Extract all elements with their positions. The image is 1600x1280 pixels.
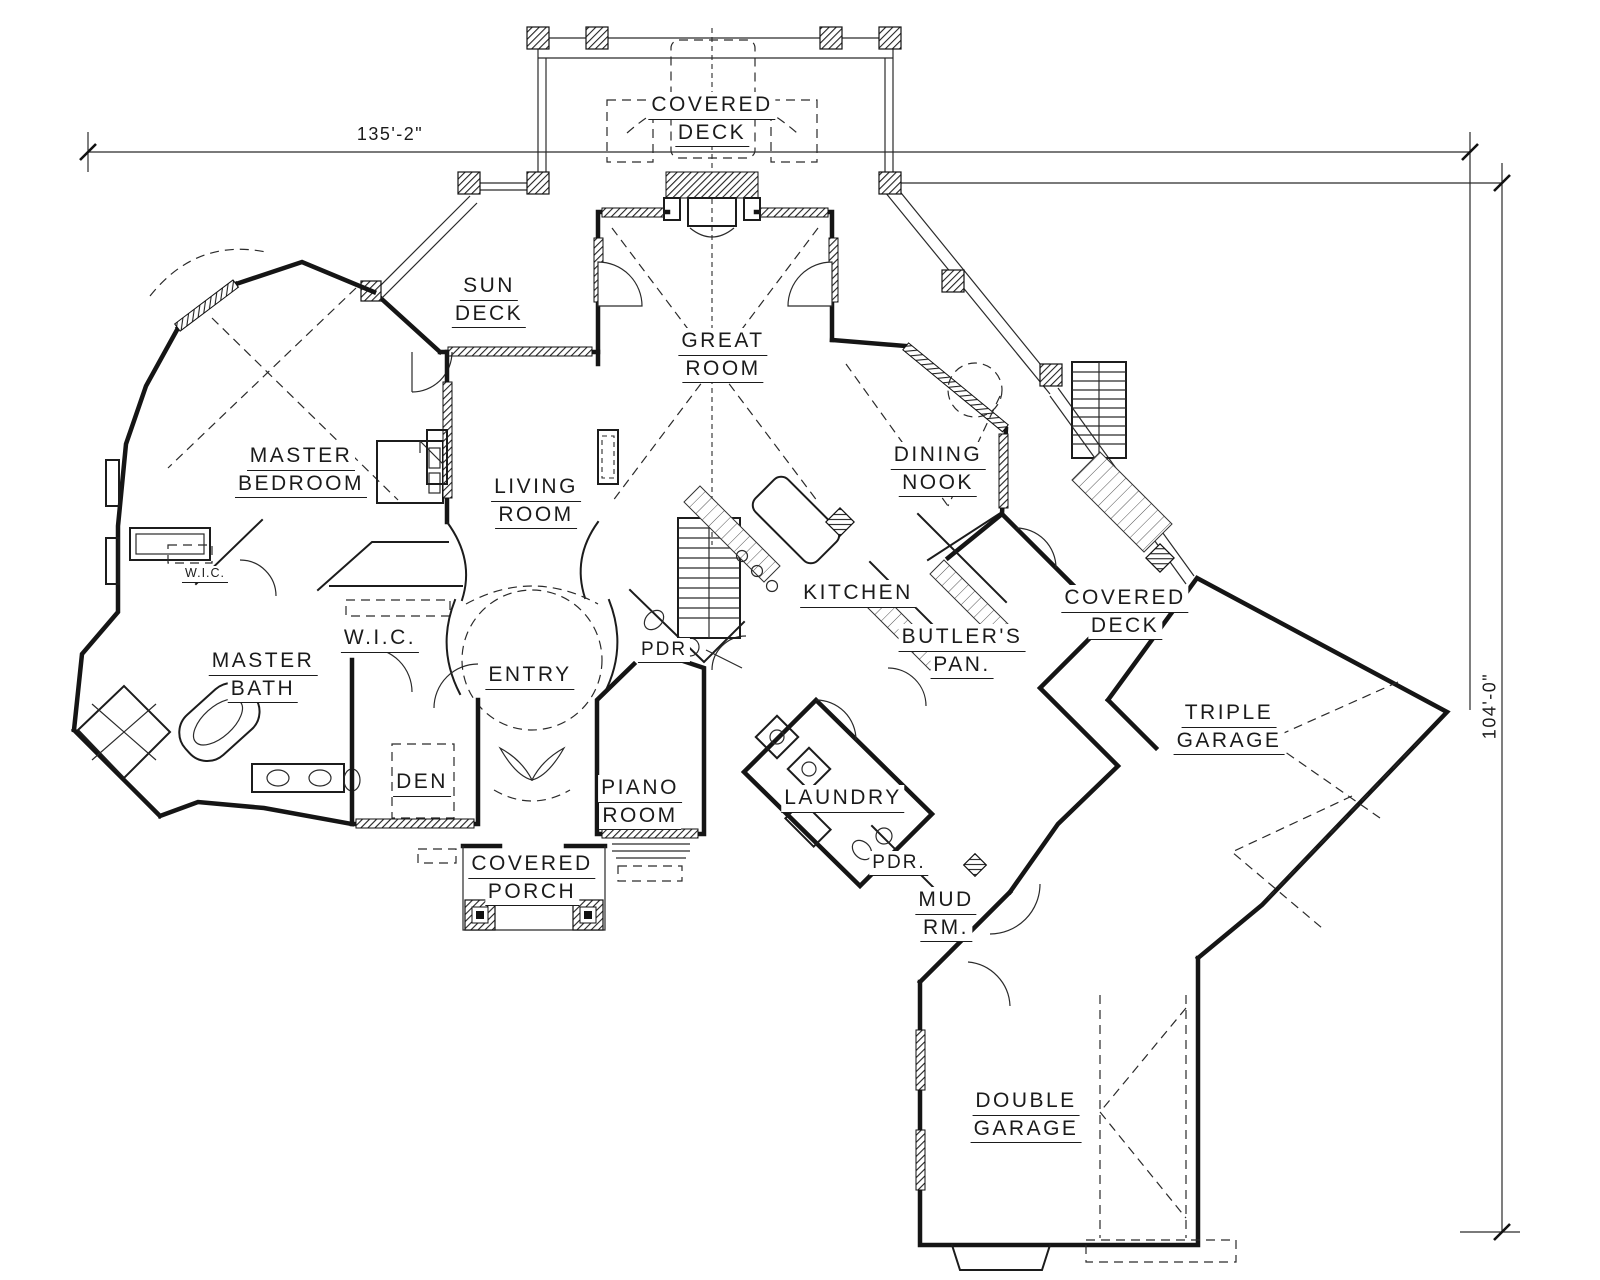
door-leaf: [598, 262, 642, 306]
right-deck-and-stairs: [1050, 362, 1194, 584]
room-label-kitchen: KITCHEN: [800, 580, 916, 608]
room-label-den: DEN: [393, 769, 451, 797]
dimension-label-height: 104'-0": [1480, 673, 1501, 739]
front-door-leaf: [532, 748, 564, 780]
toilet: [641, 607, 668, 634]
door-leaf: [788, 262, 832, 306]
room-label-mud-room: MUD RM.: [915, 887, 976, 942]
rear-corridor-walls: [1002, 514, 1118, 892]
room-label-great-room: GREAT ROOM: [678, 328, 767, 383]
room-label-covered-porch: COVERED PORCH: [468, 851, 595, 906]
master-bed: [377, 441, 443, 503]
room-label-double-garage: DOUBLE GARAGE: [971, 1088, 1082, 1143]
room-label-piano-room: PIANO ROOM: [598, 775, 682, 830]
entry-rotunda: [447, 586, 618, 801]
floor-plan-drawing: [0, 0, 1600, 1280]
room-label-sun-deck: SUN DECK: [452, 273, 526, 328]
room-label-living-room: LIVING ROOM: [491, 474, 581, 529]
room-label-covered-deck-top: COVERED DECK: [648, 92, 775, 147]
room-label-master-bath: MASTER BATH: [209, 648, 318, 703]
sink: [876, 828, 892, 844]
room-label-pdr-entry: PDR: [638, 638, 690, 663]
dimension-label-width: 135'-2": [357, 124, 423, 145]
piano-room-walls: [597, 656, 704, 881]
room-label-butlers-pantry: BUTLER'S PAN.: [899, 624, 1026, 679]
front-door-leaf: [500, 748, 532, 780]
room-label-wic-large: W.I.C.: [341, 625, 419, 653]
room-label-laundry: LAUNDRY: [781, 785, 904, 813]
floor-plan-sheet: COVERED DECK SUN DECK GREAT ROOM MASTER …: [0, 0, 1600, 1280]
room-label-dining-nook: DINING NOOK: [891, 442, 986, 497]
room-label-entry: ENTRY: [485, 662, 574, 690]
vanity: [252, 764, 344, 792]
dryer: [788, 748, 830, 790]
room-label-pdr-mud: PDR.: [869, 851, 928, 876]
room-label-triple-garage: TRIPLE GARAGE: [1174, 700, 1285, 755]
room-label-master-bedroom: MASTER BEDROOM: [235, 443, 367, 498]
room-label-wic-small: W.I.C.: [182, 566, 228, 583]
den-walls: [352, 648, 478, 828]
room-label-covered-deck-right: COVERED DECK: [1061, 585, 1188, 640]
fireplace: [666, 172, 758, 198]
master-wing-walls: [74, 249, 462, 824]
